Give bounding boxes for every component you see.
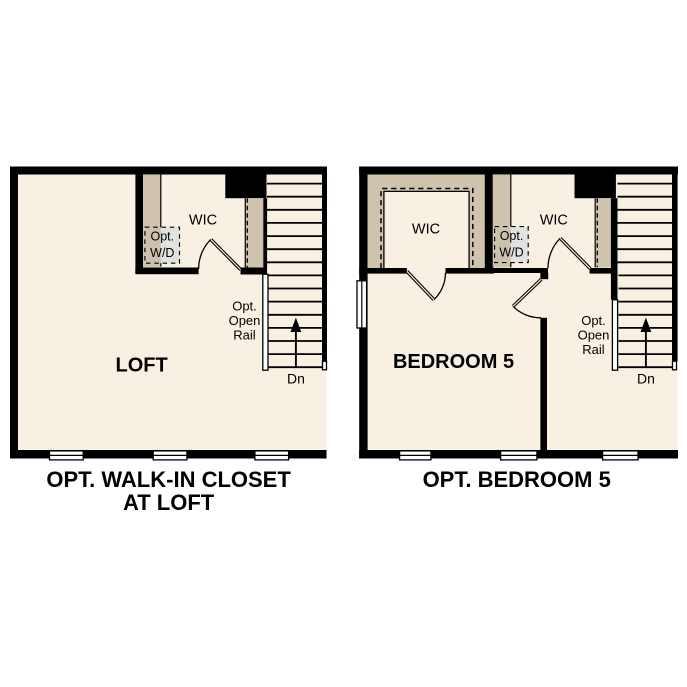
svg-text:AT LOFT: AT LOFT bbox=[123, 490, 215, 515]
svg-text:WIC: WIC bbox=[412, 222, 440, 238]
svg-text:Open: Open bbox=[229, 313, 261, 328]
svg-text:Rail: Rail bbox=[582, 342, 605, 357]
svg-text:OPT. BEDROOM 5: OPT. BEDROOM 5 bbox=[423, 467, 611, 492]
svg-text:WIC: WIC bbox=[540, 213, 568, 229]
svg-text:Opt.: Opt. bbox=[500, 229, 524, 243]
svg-text:W/D: W/D bbox=[150, 246, 174, 260]
svg-text:BEDROOM 5: BEDROOM 5 bbox=[393, 351, 514, 373]
svg-text:Rail: Rail bbox=[233, 328, 256, 343]
svg-text:Open: Open bbox=[578, 328, 610, 343]
svg-text:Opt.: Opt. bbox=[150, 230, 174, 244]
svg-text:W/D: W/D bbox=[499, 246, 523, 260]
svg-text:Dn: Dn bbox=[287, 371, 305, 387]
svg-text:Opt.: Opt. bbox=[232, 299, 257, 314]
svg-text:OPT. WALK-IN CLOSET: OPT. WALK-IN CLOSET bbox=[46, 467, 291, 492]
svg-text:WIC: WIC bbox=[189, 213, 217, 229]
svg-text:Opt.: Opt. bbox=[581, 313, 606, 328]
svg-text:LOFT: LOFT bbox=[115, 355, 167, 377]
svg-text:Dn: Dn bbox=[637, 371, 655, 387]
